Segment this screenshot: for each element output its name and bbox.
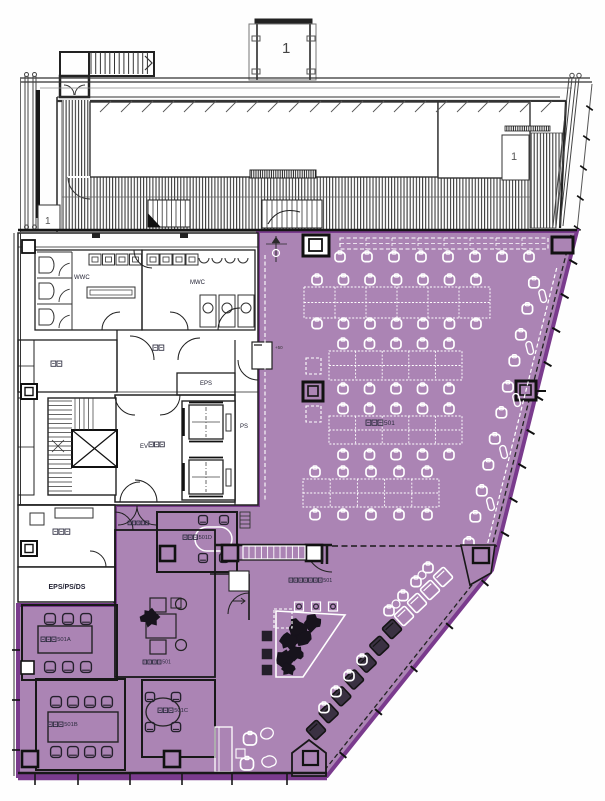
svg-text:1: 1 (45, 216, 51, 227)
svg-text:501: 501 (162, 660, 171, 666)
svg-text:1: 1 (511, 151, 517, 163)
svg-text:EV: EV (140, 444, 148, 450)
svg-text:501: 501 (323, 578, 332, 584)
svg-text:WWC: WWC (74, 275, 90, 281)
svg-text:1: 1 (282, 40, 290, 57)
svg-text:MWC: MWC (190, 280, 206, 286)
svg-text:501B: 501B (64, 722, 78, 728)
svg-text:+50: +50 (275, 345, 283, 350)
svg-text:EPS: EPS (200, 381, 212, 387)
svg-text:PS: PS (240, 424, 248, 430)
svg-text:EPS/PS/DS: EPS/PS/DS (49, 584, 86, 591)
svg-text:501D: 501D (199, 535, 212, 541)
svg-text:501A: 501A (57, 637, 71, 643)
svg-text:501C: 501C (174, 708, 188, 714)
svg-text:501: 501 (384, 420, 395, 427)
